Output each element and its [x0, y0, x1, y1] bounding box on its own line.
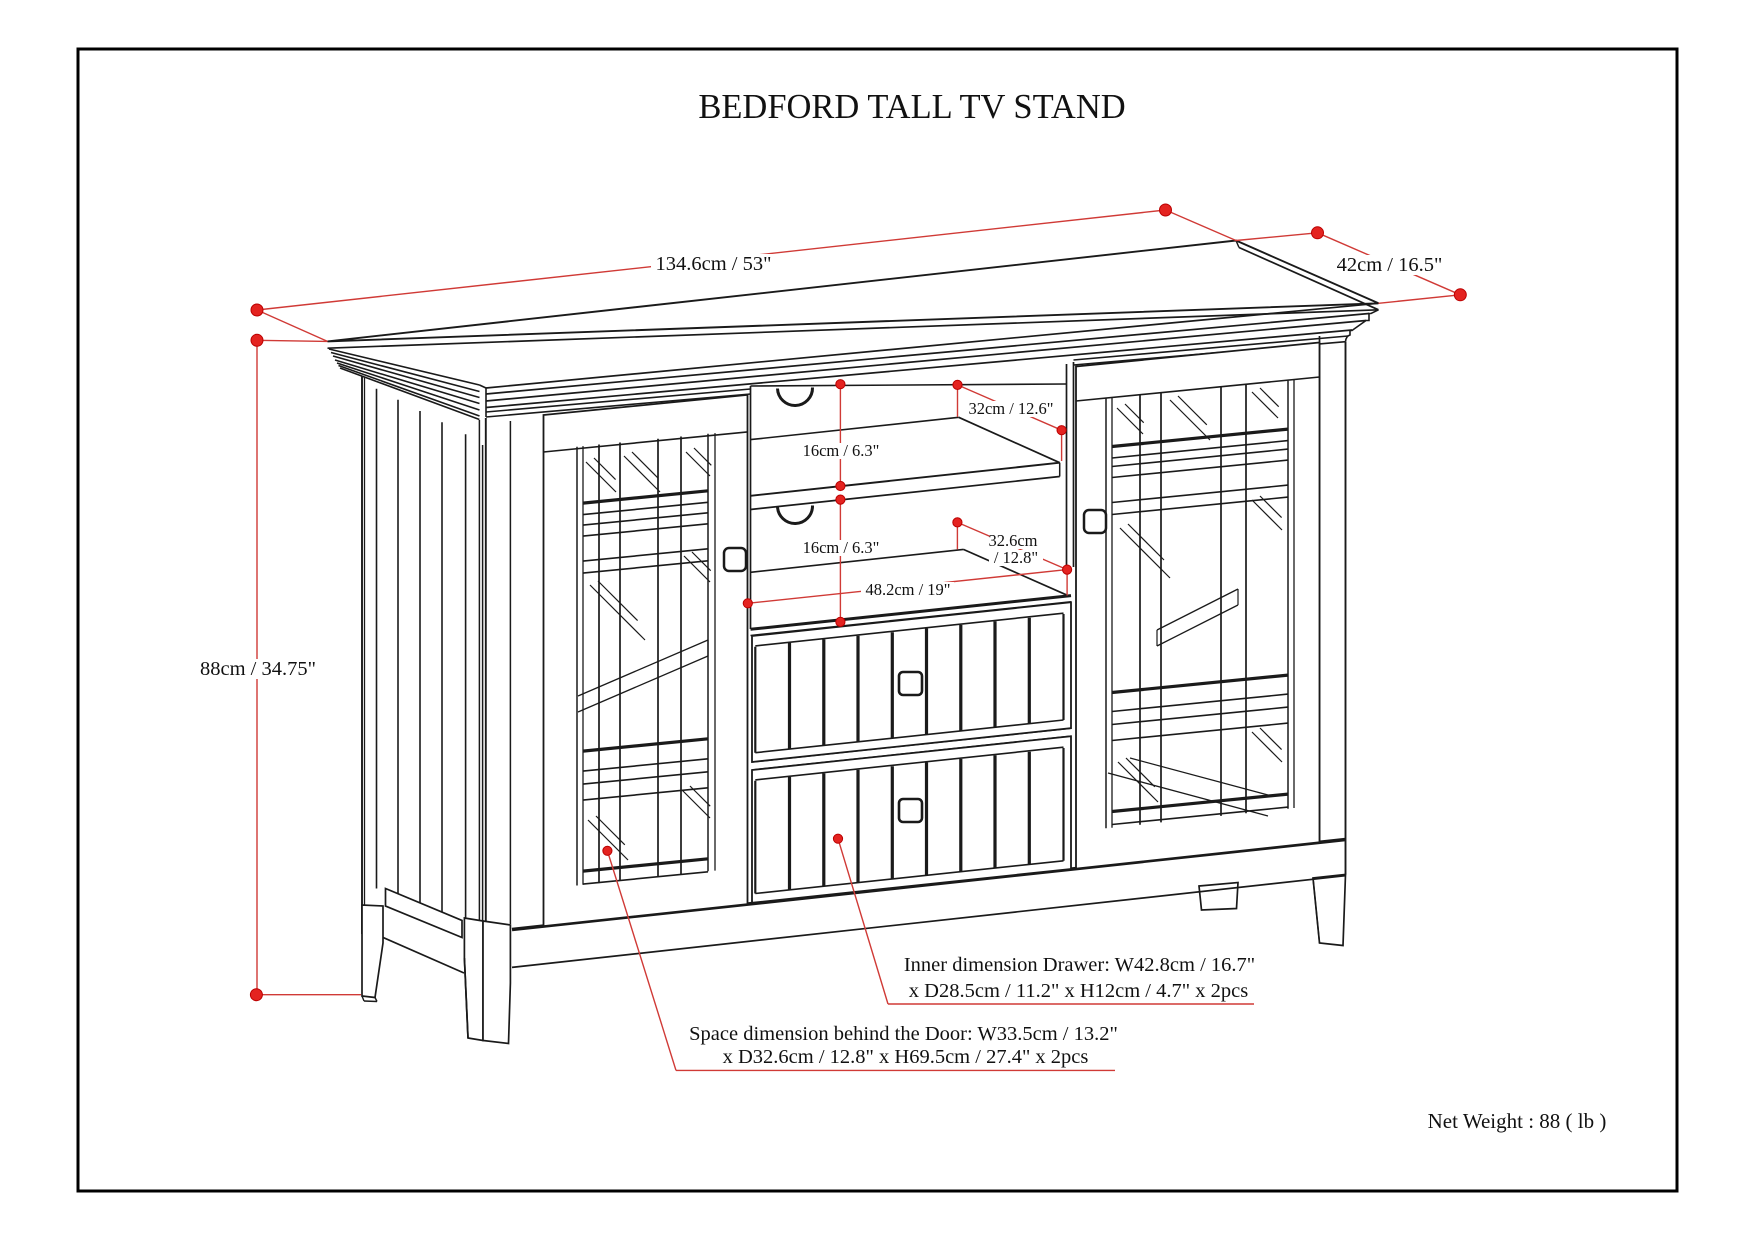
svg-text:16cm / 6.3": 16cm / 6.3"	[803, 538, 880, 557]
svg-text:48.2cm / 19": 48.2cm / 19"	[865, 580, 950, 599]
svg-text:32cm / 12.6": 32cm / 12.6"	[968, 399, 1053, 418]
svg-text:Inner dimension Drawer: W42.8c: Inner dimension Drawer: W42.8cm / 16.7"	[904, 954, 1255, 976]
svg-text:BEDFORD TALL TV STAND: BEDFORD TALL TV STAND	[698, 88, 1125, 126]
svg-text:16cm / 6.3": 16cm / 6.3"	[803, 441, 880, 460]
svg-text:x D32.6cm / 12.8" x H69.5cm /: x D32.6cm / 12.8" x H69.5cm / 27.4" x 2p…	[723, 1046, 1089, 1068]
svg-text:42cm / 16.5": 42cm / 16.5"	[1337, 254, 1443, 276]
svg-text:Space dimension behind the Doo: Space dimension behind the Door: W33.5cm…	[689, 1023, 1118, 1045]
svg-text:134.6cm / 53": 134.6cm / 53"	[656, 253, 772, 275]
svg-text:/ 12.8": / 12.8"	[994, 548, 1038, 567]
svg-text:Net Weight : 88 ( lb ): Net Weight : 88 ( lb )	[1428, 1109, 1607, 1133]
svg-text:88cm / 34.75": 88cm / 34.75"	[200, 658, 316, 680]
svg-text:x D28.5cm / 11.2" x H12cm / 4.: x D28.5cm / 11.2" x H12cm / 4.7" x 2pcs	[909, 980, 1248, 1002]
